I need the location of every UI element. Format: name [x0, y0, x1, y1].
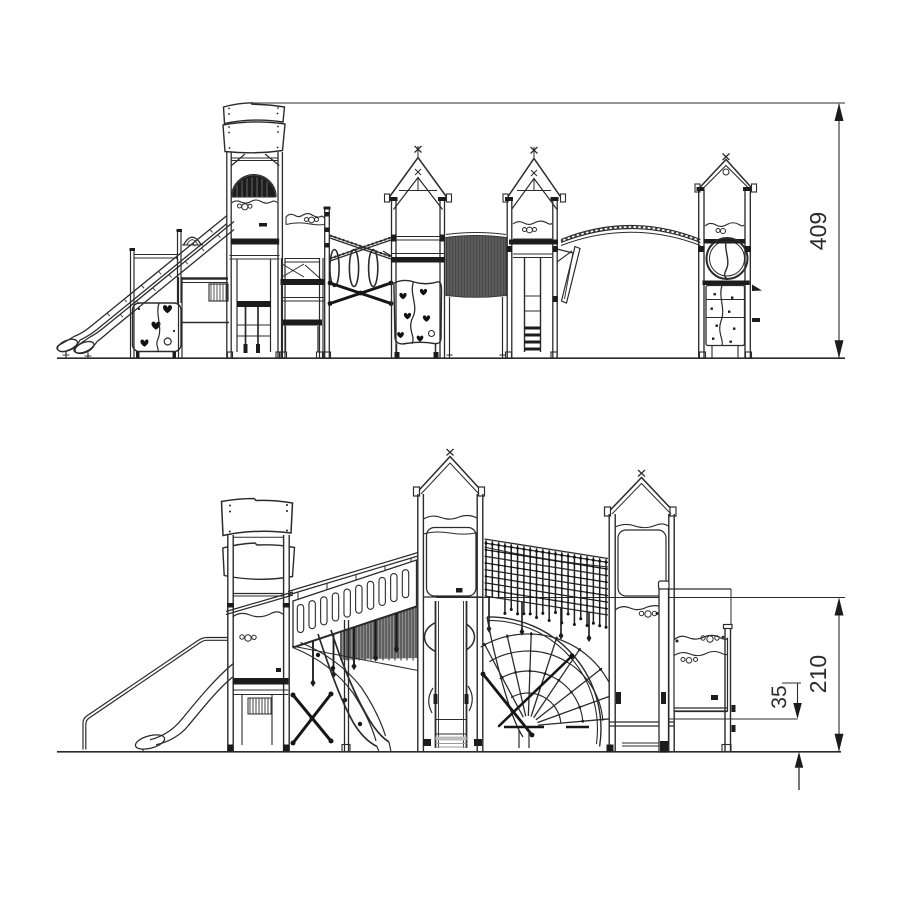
svg-text:210: 210 — [805, 655, 831, 693]
svg-text:409: 409 — [805, 212, 831, 250]
svg-text:35: 35 — [768, 685, 791, 708]
